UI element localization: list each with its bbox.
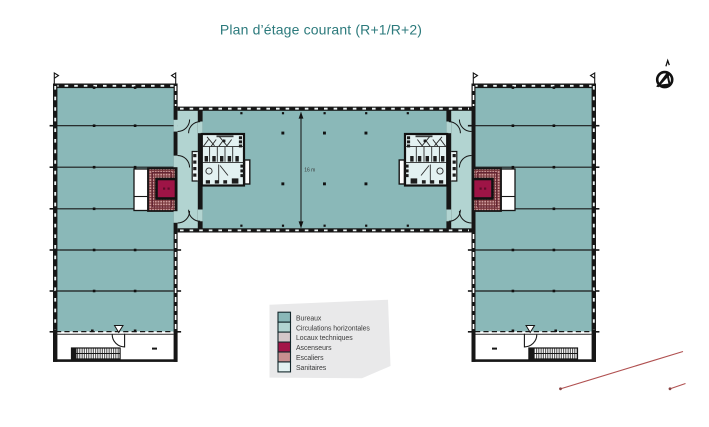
svg-text:Ascenseurs: Ascenseurs	[296, 345, 332, 352]
svg-text:Bureaux: Bureaux	[296, 315, 322, 322]
svg-text:Escaliers: Escaliers	[296, 355, 324, 362]
svg-text:16 m: 16 m	[304, 168, 315, 174]
svg-text:Sanitaires: Sanitaires	[296, 365, 327, 372]
svg-text:Locaux techniques: Locaux techniques	[296, 335, 353, 342]
svg-text:Plan d’étage courant (R+1/R+2): Plan d’étage courant (R+1/R+2)	[220, 22, 422, 38]
svg-text:Circulations horizontales: Circulations horizontales	[296, 325, 370, 332]
